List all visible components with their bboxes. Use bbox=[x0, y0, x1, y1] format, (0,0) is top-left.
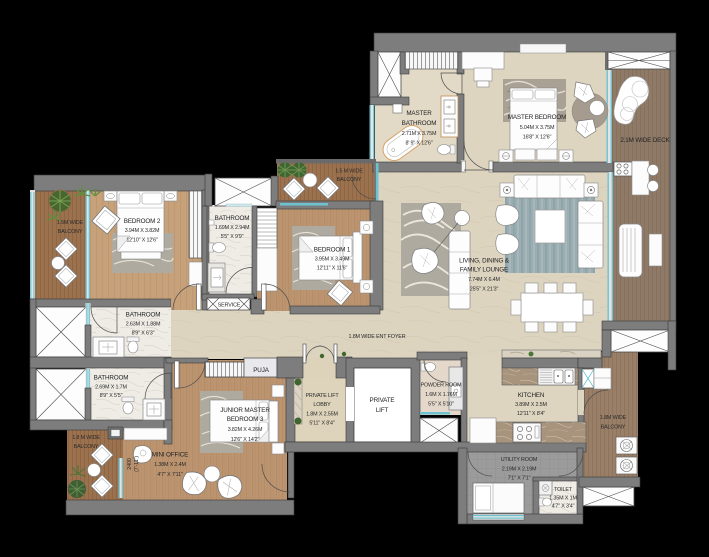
svg-text:(7'-11"): (7'-11") bbox=[134, 456, 140, 472]
svg-text:8' 9" X 12'6": 8' 9" X 12'6" bbox=[405, 141, 432, 147]
svg-text:8'9" X 6'3": 8'9" X 6'3" bbox=[132, 331, 155, 337]
svg-text:7'1" X 7'1": 7'1" X 7'1" bbox=[508, 476, 531, 482]
svg-text:PRIVATE: PRIVATE bbox=[370, 397, 395, 404]
svg-text:BATHROOM: BATHROOM bbox=[126, 312, 161, 319]
svg-text:1.8 M WIDE: 1.8 M WIDE bbox=[72, 435, 100, 441]
svg-text:12'10" X 12'6": 12'10" X 12'6" bbox=[126, 238, 158, 244]
svg-text:LIFT: LIFT bbox=[376, 407, 389, 414]
svg-text:3.89M X 2.5M: 3.89M X 2.5M bbox=[515, 402, 547, 408]
svg-text:LOBBY: LOBBY bbox=[313, 402, 331, 408]
svg-text:POWDER ROOM: POWDER ROOM bbox=[421, 383, 463, 389]
svg-text:BEDROOM 1: BEDROOM 1 bbox=[314, 247, 351, 254]
svg-text:4'7" X 3'4": 4'7" X 3'4" bbox=[552, 504, 575, 510]
svg-text:2.71M X 3.75M: 2.71M X 3.75M bbox=[402, 131, 437, 137]
svg-text:1.8M WIDE: 1.8M WIDE bbox=[600, 415, 627, 421]
svg-text:MINI OFFICE: MINI OFFICE bbox=[152, 452, 188, 459]
svg-text:12'6" X 14'2": 12'6" X 14'2" bbox=[231, 437, 260, 443]
svg-text:FAMILY LOUNGE: FAMILY LOUNGE bbox=[460, 267, 508, 274]
svg-text:5.04M X 3.75M: 5.04M X 3.75M bbox=[520, 125, 555, 131]
svg-text:BALCONY: BALCONY bbox=[337, 177, 362, 183]
svg-text:BALCONY: BALCONY bbox=[58, 229, 83, 235]
svg-text:1.38M X 2.4M: 1.38M X 2.4M bbox=[154, 462, 186, 468]
svg-text:1.5 M WIDE: 1.5 M WIDE bbox=[335, 169, 363, 175]
svg-text:1.35M X 1M: 1.35M X 1M bbox=[549, 496, 577, 502]
svg-text:PRIVATE LIFT: PRIVATE LIFT bbox=[305, 393, 339, 399]
svg-text:BALCONY: BALCONY bbox=[601, 425, 626, 431]
svg-text:3.82M X 4.26M: 3.82M X 4.26M bbox=[228, 427, 263, 433]
svg-text:UTILITY ROOM: UTILITY ROOM bbox=[501, 457, 538, 463]
svg-text:MASTER BEDROOM: MASTER BEDROOM bbox=[508, 114, 566, 121]
svg-text:SERVICE: SERVICE bbox=[218, 303, 241, 309]
svg-text:BALCONY: BALCONY bbox=[74, 444, 99, 450]
svg-text:4'7" X 7'11": 4'7" X 7'11" bbox=[157, 472, 183, 478]
svg-text:12'11" X 8'4": 12'11" X 8'4" bbox=[517, 411, 545, 417]
svg-text:2.1M WIDE DECK: 2.1M WIDE DECK bbox=[620, 137, 670, 144]
svg-text:2400: 2400 bbox=[127, 458, 133, 470]
svg-text:2.69M X 1.7M: 2.69M X 1.7M bbox=[95, 385, 127, 391]
svg-text:25'5" X 21'3": 25'5" X 21'3" bbox=[470, 287, 499, 293]
svg-text:8'9" X 5'5": 8'9" X 5'5" bbox=[100, 393, 123, 399]
svg-text:BATHROOM: BATHROOM bbox=[94, 375, 129, 382]
svg-text:7.74M X 6.4M: 7.74M X 6.4M bbox=[468, 277, 500, 283]
svg-text:LIVING, DINING &: LIVING, DINING & bbox=[459, 258, 510, 265]
svg-text:BEDROOM 2: BEDROOM 2 bbox=[124, 218, 161, 225]
svg-text:5'5" X 9'9": 5'5" X 9'9" bbox=[221, 234, 244, 240]
svg-text:JUNIOR MASTER: JUNIOR MASTER bbox=[220, 407, 270, 414]
svg-text:12'11" X 11'6": 12'11" X 11'6" bbox=[317, 266, 348, 272]
svg-text:1.69M X 2.94M: 1.69M X 2.94M bbox=[215, 225, 250, 231]
svg-text:BEDROOM 3: BEDROOM 3 bbox=[227, 416, 264, 423]
svg-text:1.6M X 1.76M: 1.6M X 1.76M bbox=[425, 392, 457, 398]
svg-text:5'5" X 5'10": 5'5" X 5'10" bbox=[428, 402, 454, 408]
svg-text:5'11" X 8'4": 5'11" X 8'4" bbox=[309, 421, 335, 427]
svg-text:KITCHEN: KITCHEN bbox=[518, 392, 545, 399]
svg-text:BATHROOM: BATHROOM bbox=[215, 215, 250, 222]
svg-text:16'8" X 12'6": 16'8" X 12'6" bbox=[523, 135, 552, 141]
svg-text:3.94M X 3.82M: 3.94M X 3.82M bbox=[125, 228, 160, 234]
svg-text:BATHROOM: BATHROOM bbox=[402, 120, 437, 127]
svg-text:2.63M X 1.88M: 2.63M X 1.88M bbox=[126, 322, 161, 328]
svg-text:TOILET: TOILET bbox=[554, 487, 573, 493]
svg-text:PUJA: PUJA bbox=[253, 367, 269, 374]
svg-text:2.19M X 2.19M: 2.19M X 2.19M bbox=[502, 467, 537, 473]
svg-text:MASTER: MASTER bbox=[406, 110, 432, 117]
svg-text:1.8M X 2.55M: 1.8M X 2.55M bbox=[306, 412, 338, 418]
svg-text:3.95M X 3.49M: 3.95M X 3.49M bbox=[315, 257, 350, 263]
svg-text:1.5M WIDE: 1.5M WIDE bbox=[57, 220, 84, 226]
svg-text:1.8M WIDE ENT FOYER: 1.8M WIDE ENT FOYER bbox=[349, 334, 406, 340]
